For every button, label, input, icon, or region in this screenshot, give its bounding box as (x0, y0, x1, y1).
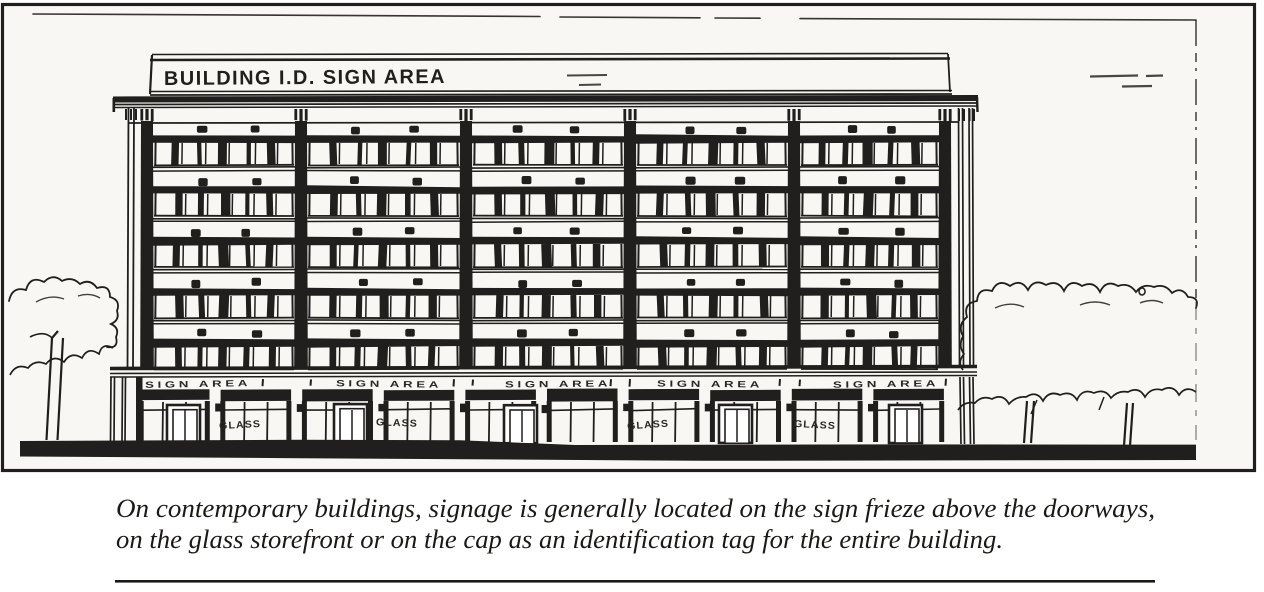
svg-text:SIGN AREA: SIGN AREA (145, 378, 251, 390)
svg-text:BUILDING I.D. SIGN AREA: BUILDING I.D. SIGN AREA (164, 66, 446, 90)
svg-text:SIGN AREA: SIGN AREA (657, 379, 763, 390)
svg-text:GLASS: GLASS (794, 419, 837, 432)
svg-text:on the glass storefront or on: on the glass storefront or on the cap as… (116, 524, 1003, 554)
svg-text:On contemporary buildings, sig: On contemporary buildings, signage is ge… (116, 493, 1155, 523)
svg-text:GLASS: GLASS (219, 419, 262, 432)
svg-text:SIGN AREA: SIGN AREA (505, 378, 611, 389)
svg-text:SIGN AREA: SIGN AREA (336, 378, 442, 389)
svg-text:SIGN AREA: SIGN AREA (833, 378, 939, 389)
svg-text:GLASS: GLASS (376, 417, 418, 429)
